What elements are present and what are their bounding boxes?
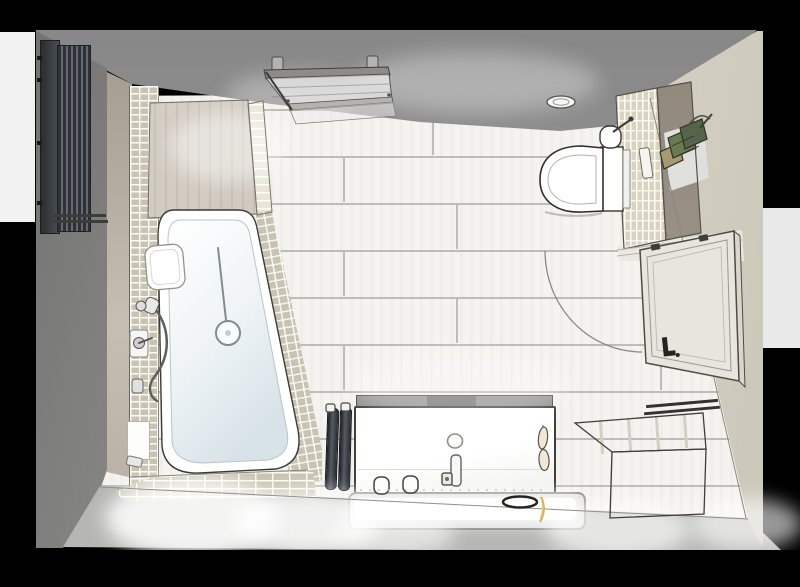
background-panel-right: [763, 208, 800, 348]
floor-tile-joint: [456, 204, 458, 249]
floor-tile-joint: [343, 157, 345, 202]
vanity-seam: [358, 469, 548, 470]
radiator-rail: [54, 214, 106, 217]
floor-tile-joint: [456, 298, 458, 343]
floor-tile-joint: [660, 345, 662, 390]
radiator-bracket: [37, 78, 42, 82]
background-panel-left: [0, 32, 35, 222]
radiator-bracket: [37, 56, 42, 60]
hanging-towel: [338, 407, 352, 491]
shower-niche: [127, 421, 150, 460]
floor-tile-joint: [600, 157, 602, 202]
ceiling-glow: [350, 52, 600, 114]
floor-tile-joint: [343, 345, 345, 390]
radiator-bracket: [37, 141, 42, 145]
floor-tile-joint: [343, 251, 345, 296]
light-pool: [690, 498, 800, 550]
letterbox-bottom: [0, 550, 800, 587]
light-pool: [170, 112, 285, 182]
light-pool: [352, 352, 567, 422]
radiator-slats: [57, 45, 91, 232]
radiator-bracket: [37, 201, 42, 205]
radiator-rail: [52, 220, 108, 223]
bathroom-rendering: [0, 0, 800, 587]
